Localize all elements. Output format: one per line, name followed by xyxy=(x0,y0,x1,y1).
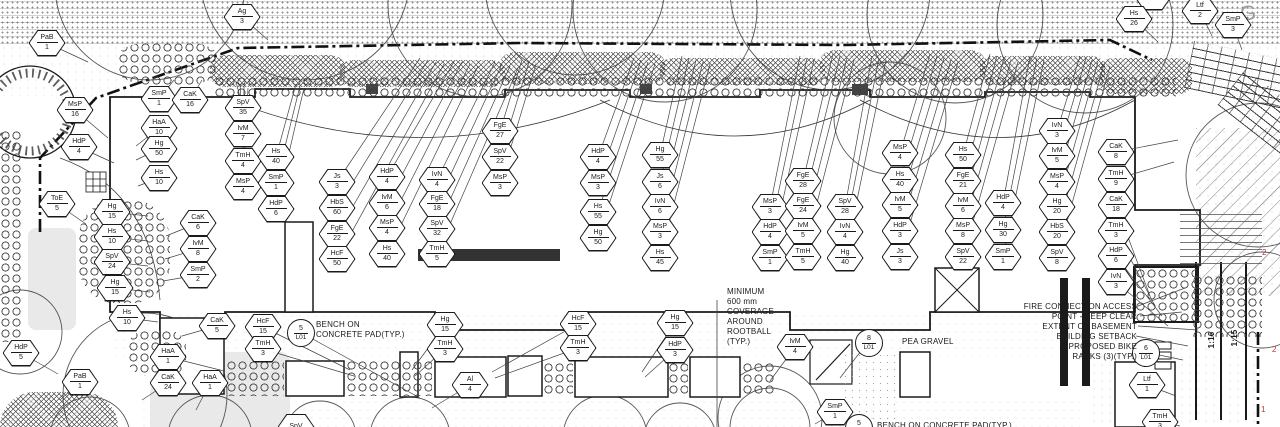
plant-qty: 4 xyxy=(898,153,902,162)
plant-label-face: CaK6 xyxy=(181,211,216,236)
plant-qty: 4 xyxy=(241,161,245,170)
plant-code: IvM xyxy=(188,240,209,249)
plant-label-face: Al4 xyxy=(453,373,488,398)
plant-code: MsP xyxy=(1047,173,1068,182)
plant-qty: 15 xyxy=(111,288,119,297)
plant-label-face: Ltf2 xyxy=(1183,0,1218,23)
ramp-slope-1: 1:16 xyxy=(1207,320,1217,360)
plant-label-face: HdP5 xyxy=(4,341,39,366)
plant-code: IvN xyxy=(650,198,671,207)
plant-code: MsP xyxy=(233,178,254,187)
plant-qty: 3 xyxy=(443,349,447,358)
plant-qty: 2 xyxy=(1151,0,1155,2)
plant-qty: 28 xyxy=(841,207,849,216)
plant-qty: 5 xyxy=(215,326,219,335)
plant-qty: 10 xyxy=(108,237,116,246)
plant-label-face: HbS20 xyxy=(1040,220,1075,245)
plant-label-face: FgE22 xyxy=(320,222,355,247)
plant-qty: 22 xyxy=(496,157,504,166)
plant-label-face: MsP3 xyxy=(581,171,616,196)
plant-qty: 5 xyxy=(898,205,902,214)
plant-label-face: HdP4 xyxy=(62,135,97,160)
plant-label-face: FgE24 xyxy=(786,194,821,219)
plant-code: SmP xyxy=(265,174,286,183)
plant-label-face: HaA1 xyxy=(193,371,228,396)
plant-qty: 9 xyxy=(1114,179,1118,188)
plant-code: Hg xyxy=(149,140,170,149)
plant-code: Hg xyxy=(105,279,126,288)
plant-qty: 7 xyxy=(241,134,245,143)
plant-qty: 1 xyxy=(78,382,82,391)
plant-qty: 6 xyxy=(658,182,662,191)
plant-code: SpV xyxy=(1047,249,1068,258)
plant-qty: 4 xyxy=(793,347,797,356)
plant-code: HdP xyxy=(1106,247,1127,256)
plant-label-face: HcF15 xyxy=(561,312,596,337)
plant-qty: 3 xyxy=(1114,282,1118,291)
plant-qty: 40 xyxy=(383,254,391,263)
plant-qty: 8 xyxy=(1055,258,1059,267)
plant-code: IvM xyxy=(785,338,806,347)
plant-qty: 21 xyxy=(959,181,967,190)
plant-code: MsP xyxy=(890,144,911,153)
plant-code: Js xyxy=(327,173,348,182)
plant-code: Hg xyxy=(835,249,856,258)
plant-qty: 4 xyxy=(1055,182,1059,191)
plant-label-face: HdP4 xyxy=(370,165,405,190)
plant-label-face: IvN3 xyxy=(1099,270,1134,295)
plant-code: FgE xyxy=(427,195,448,204)
plant-label-face: FgE27 xyxy=(483,119,518,144)
plant-label-face: Hg30 xyxy=(986,218,1021,243)
plant-label-face: TmH3 xyxy=(561,336,596,361)
plant-label-face: HdP6 xyxy=(259,197,294,222)
plant-code: TmH xyxy=(1105,170,1126,179)
plant-code: SmP xyxy=(187,266,208,275)
plant-label-face: Hs10 xyxy=(95,225,130,250)
plant-code: Ltf xyxy=(1190,2,1211,11)
plant-code: Hs xyxy=(953,146,974,155)
plant-label-face: Js3 xyxy=(320,170,355,195)
plant-label-face: Hs10 xyxy=(110,306,145,331)
plant-label-face: MsP8 xyxy=(946,219,981,244)
plant-label-face: IvN3 xyxy=(1040,119,1075,144)
plant-code: TmH xyxy=(252,340,273,349)
plant-label-face: PaB1 xyxy=(30,31,65,56)
plant-label-face: HdP4 xyxy=(581,145,616,170)
plant-code: Hs xyxy=(266,148,287,157)
plant-qty: 55 xyxy=(656,155,664,164)
plant-qty: 2 xyxy=(1198,11,1202,20)
plant-code: HcF xyxy=(253,318,274,327)
plant-label-face: IvM5 xyxy=(1040,144,1075,169)
plant-label-face: FgE18 xyxy=(420,192,455,217)
plant-code: Js xyxy=(650,173,671,182)
note-line: AROUND xyxy=(727,317,774,327)
plant-label-face: HcF50 xyxy=(320,247,355,272)
plant-label-face: IvN6 xyxy=(643,195,678,220)
plant-code: HcF xyxy=(568,315,589,324)
plant-code: CaK xyxy=(1106,143,1127,152)
plant-code: Hg xyxy=(1047,198,1068,207)
plant-qty: 6 xyxy=(196,223,200,232)
plant-label-face: SmP1 xyxy=(753,246,788,271)
note-line: RACKS (3)(TYP.) xyxy=(960,352,1137,362)
plant-label-face: Hs26 xyxy=(1117,7,1152,32)
plant-label-face: TmH3 xyxy=(1099,219,1134,244)
plant-label-face: SmP1 xyxy=(986,245,1021,270)
plant-label-face: Hg20 xyxy=(1040,195,1075,220)
note-line: ROOTBALL xyxy=(727,327,774,337)
callout-number: 6 xyxy=(1139,345,1153,354)
plant-qty: 5 xyxy=(55,204,59,213)
plant-code: TmH xyxy=(567,339,588,348)
plant-code: SpV xyxy=(102,253,123,262)
plant-code: FgE xyxy=(490,122,511,131)
plant-qty: 16 xyxy=(71,110,79,119)
plant-qty: 2 xyxy=(196,275,200,284)
plant-label-face: HbS60 xyxy=(320,196,355,221)
plant-qty: 3 xyxy=(498,183,502,192)
plant-qty: 22 xyxy=(959,257,967,266)
plant-label-face: Hg15 xyxy=(428,313,463,338)
plant-qty: 1 xyxy=(45,43,49,52)
plant-label-face: MsP3 xyxy=(643,220,678,245)
plant-code: Ltf xyxy=(1137,376,1158,385)
plant-code: SpV xyxy=(286,423,307,427)
plant-label-face: SpV8 xyxy=(1040,246,1075,271)
plant-code: SmP xyxy=(824,403,845,412)
plant-label-face: Ag3 xyxy=(225,5,260,30)
plant-code: TmH xyxy=(434,340,455,349)
plant-code: Hs xyxy=(588,203,609,212)
plant-code: HbS xyxy=(1047,223,1068,232)
plant-qty: 28 xyxy=(799,181,807,190)
plant-code: Hg xyxy=(102,203,123,212)
plant-label-face: SmP2 xyxy=(181,263,216,288)
note-line: (TYP.) xyxy=(727,337,774,347)
plant-code: Hs xyxy=(890,171,911,180)
plant-label-face: IvN4 xyxy=(828,220,863,245)
plant-label-face: Hg15 xyxy=(98,276,133,301)
plant-qty: 50 xyxy=(155,149,163,158)
callout-sheet: L01 xyxy=(864,344,875,352)
plant-label-face: FgE21 xyxy=(946,169,981,194)
plant-qty: 4 xyxy=(768,232,772,241)
callout-number: 5 xyxy=(852,420,866,427)
plant-label-face: SpV35 xyxy=(226,96,261,121)
plant-code: SmP xyxy=(759,249,780,258)
plant-code: Hs xyxy=(1124,10,1145,19)
plant-label-face: MsP3 xyxy=(483,171,518,196)
plant-label-face: Hg55 xyxy=(643,143,678,168)
plant-code: Al xyxy=(460,376,481,385)
plant-qty: 50 xyxy=(959,155,967,164)
plant-code: FgE xyxy=(793,172,814,181)
note-line: CONCRETE PAD(TYP.) xyxy=(316,330,405,340)
plant-code: HaA xyxy=(158,348,179,357)
plant-label-face: PaB1 xyxy=(63,370,98,395)
plant-code: Hs xyxy=(102,228,123,237)
plant-qty: 3 xyxy=(261,349,265,358)
plant-label-face: IvN4 xyxy=(420,168,455,193)
note-line: POINT - KEEP CLEAR xyxy=(960,312,1137,322)
plant-qty: 1 xyxy=(274,183,278,192)
plant-label-face: SpV22 xyxy=(946,245,981,270)
plant-code: CaK xyxy=(207,317,228,326)
plant-label-face: SpV28 xyxy=(828,195,863,220)
plant-code: SmP xyxy=(992,248,1013,257)
plant-label-face: FgE28 xyxy=(786,169,821,194)
plant-qty: 26 xyxy=(1130,19,1138,28)
plant-label-face: MsP16 xyxy=(58,98,93,123)
plant-label-face: Js3 xyxy=(883,245,918,270)
plant-code: FgE xyxy=(953,172,974,181)
plant-qty: 3 xyxy=(596,183,600,192)
detail-callout: 5L01 xyxy=(287,319,315,347)
plant-label-face: TmH3 xyxy=(246,337,281,362)
plant-qty: 3 xyxy=(576,348,580,357)
plant-code: CaK xyxy=(1106,196,1127,205)
bench-note: BENCH ONCONCRETE PAD(TYP.) xyxy=(316,320,405,340)
plant-qty: 45 xyxy=(656,258,664,267)
plant-label-face: Hg50 xyxy=(581,226,616,251)
plant-label-face: IvM5 xyxy=(786,219,821,244)
plant-label-face: HdP4 xyxy=(986,191,1021,216)
plant-label-face: IvM5 xyxy=(883,193,918,218)
plant-qty: 40 xyxy=(896,180,904,189)
plant-label-face: MsP4 xyxy=(1040,170,1075,195)
plant-qty: 10 xyxy=(123,318,131,327)
plant-code: IvN xyxy=(835,223,856,232)
plant-qty: 8 xyxy=(196,249,200,258)
plant-code: HdP xyxy=(890,222,911,231)
note-line: EXTENT OF BASEMENT xyxy=(960,322,1137,332)
plant-code: SpV xyxy=(953,248,974,257)
plant-qty: 40 xyxy=(272,157,280,166)
plant-qty: 1 xyxy=(768,258,772,267)
plant-code: TmH xyxy=(426,245,447,254)
plant-code: SpV xyxy=(233,99,254,108)
plant-code: HdP xyxy=(377,168,398,177)
plant-qty: 5 xyxy=(1055,156,1059,165)
plant-code: MsP xyxy=(65,101,86,110)
plant-code: Hs xyxy=(117,309,138,318)
plant-label-face: SpV22 xyxy=(483,145,518,170)
plant-qty: 4 xyxy=(596,157,600,166)
plant-label-face: IvM6 xyxy=(946,194,981,219)
plant-qty: 4 xyxy=(241,187,245,196)
plant-qty: 3 xyxy=(1158,422,1162,427)
plant-qty: 6 xyxy=(658,207,662,216)
plant-code: IvN xyxy=(427,171,448,180)
plant-code: SmP xyxy=(1222,16,1243,25)
plant-label-face: Hg40 xyxy=(828,246,863,271)
plant-label-face: TmH4 xyxy=(226,149,261,174)
plant-qty: 1 xyxy=(1145,385,1149,394)
note-line: 600 mm xyxy=(727,297,774,307)
plant-qty: 32 xyxy=(433,229,441,238)
plant-label-face: Hs40 xyxy=(883,168,918,193)
plant-qty: 6 xyxy=(1114,256,1118,265)
red-revision-mark: 1 xyxy=(1261,405,1265,414)
plant-label-face: CaK16 xyxy=(173,88,208,113)
plant-code: Hs xyxy=(650,249,671,258)
plant-code: IvN xyxy=(1047,122,1068,131)
plant-code: MsP xyxy=(953,222,974,231)
note-line: FIRE CONNECTION ACCESS xyxy=(960,302,1137,312)
plant-code: Hg xyxy=(993,221,1014,230)
plant-label-face: Hs55 xyxy=(581,200,616,225)
plant-code: MsP xyxy=(490,174,511,183)
plant-code: IvM xyxy=(233,125,254,134)
plant-label-face: HdP6 xyxy=(1099,244,1134,269)
plant-label-face: SmP3 xyxy=(1216,13,1251,38)
plant-code: MsP xyxy=(377,219,398,228)
plant-qty: 50 xyxy=(594,238,602,247)
plant-label-face: Hg15 xyxy=(95,200,130,225)
plant-code: Hs xyxy=(377,245,398,254)
plant-qty: 3 xyxy=(898,231,902,240)
plant-code: Js xyxy=(890,248,911,257)
plant-label-face: MsP3 xyxy=(753,195,788,220)
plant-qty: 20 xyxy=(1053,232,1061,241)
plant-code: HbS xyxy=(327,199,348,208)
plant-label-face: SmP1 xyxy=(142,87,177,112)
plant-code: SpV xyxy=(835,198,856,207)
plant-qty: 18 xyxy=(1112,205,1120,214)
plant-code: CaK xyxy=(158,374,179,383)
plant-code: IvM xyxy=(953,197,974,206)
plant-code: HdP xyxy=(665,341,686,350)
plant-qty: 4 xyxy=(843,232,847,241)
note-line: PROPOSED BIKE xyxy=(960,342,1137,352)
plant-code: HdP xyxy=(588,148,609,157)
plant-code: Hg xyxy=(435,316,456,325)
plant-code: MsP xyxy=(650,223,671,232)
plant-code: SpV xyxy=(427,220,448,229)
plant-label-face: HdP4 xyxy=(753,220,788,245)
plant-qty: 8 xyxy=(961,231,965,240)
plant-code: HcF xyxy=(327,250,348,259)
plant-code: TmH xyxy=(1149,413,1170,422)
plant-label-face: IvM7 xyxy=(226,122,261,147)
plant-label-face: ToE5 xyxy=(40,192,75,217)
plant-qty: 6 xyxy=(385,203,389,212)
plant-qty: 20 xyxy=(1053,207,1061,216)
plant-qty: 3 xyxy=(658,232,662,241)
plant-code: Ag xyxy=(232,8,253,17)
plant-code: IvN xyxy=(1106,273,1127,282)
plant-qty: 15 xyxy=(441,325,449,334)
plant-label-face: TmH9 xyxy=(1099,167,1134,192)
plant-code: IvM xyxy=(377,194,398,203)
plant-qty: 5 xyxy=(435,254,439,263)
plant-qty: 3 xyxy=(1055,131,1059,140)
plant-qty: 35 xyxy=(239,108,247,117)
detail-callout: 8L01 xyxy=(855,329,883,357)
plant-qty: 10 xyxy=(155,178,163,187)
plant-label-face: CaK18 xyxy=(1099,193,1134,218)
plant-label-face: IvM8 xyxy=(181,237,216,262)
plant-code: CaK xyxy=(180,91,201,100)
plant-label-face: Hs40 xyxy=(259,145,294,170)
plant-qty: 60 xyxy=(333,208,341,217)
plant-qty: 22 xyxy=(333,234,341,243)
plant-label-face: Hs10 xyxy=(142,166,177,191)
plant-qty: 50 xyxy=(333,259,341,268)
plant-label-face: SpV24 xyxy=(95,250,130,275)
plant-code: Hg xyxy=(665,314,686,323)
rootball-note: MINIMUM600 mmCOVERAGEAROUNDROOTBALL(TYP.… xyxy=(727,287,774,347)
plant-code: HdP xyxy=(993,194,1014,203)
plant-qty: 16 xyxy=(186,100,194,109)
plant-qty: 3 xyxy=(240,17,244,26)
plant-code: PaB xyxy=(37,34,58,43)
plant-qty: 1 xyxy=(833,412,837,421)
plant-code: Hg xyxy=(650,146,671,155)
red-revision-mark: 2 xyxy=(1262,248,1266,257)
note-line: COVERAGE xyxy=(727,307,774,317)
plant-label-face: SmP1 xyxy=(259,171,294,196)
plant-qty: 24 xyxy=(164,383,172,392)
plant-qty: 6 xyxy=(274,209,278,218)
plant-label-face: HdP3 xyxy=(658,338,693,363)
callout-number: 8 xyxy=(862,335,876,344)
plant-label-face: MsP4 xyxy=(883,141,918,166)
plant-qty: 1 xyxy=(208,383,212,392)
plant-label-face: Hs40 xyxy=(370,242,405,267)
plant-qty: 18 xyxy=(433,204,441,213)
plant-code: HdP xyxy=(11,344,32,353)
ramp-slope-2: 1:15 xyxy=(1230,318,1240,358)
callout-sheet: L01 xyxy=(296,334,307,342)
plant-label-face: Hg50 xyxy=(142,137,177,162)
plant-code: TmH xyxy=(232,152,253,161)
plant-label-face: CaK8 xyxy=(1099,140,1134,165)
plant-qty: 3 xyxy=(1114,231,1118,240)
plant-code: IvM xyxy=(793,222,814,231)
plant-label-face: MsP4 xyxy=(370,216,405,241)
plant-qty: 15 xyxy=(259,327,267,336)
plant-code: ToE xyxy=(47,195,68,204)
plant-qty: 3 xyxy=(898,257,902,266)
plant-code: HdP xyxy=(69,138,90,147)
plant-qty: 3 xyxy=(1231,25,1235,34)
plant-label-face: CaK24 xyxy=(151,371,186,396)
plant-code: MsP xyxy=(760,198,781,207)
plant-qty: 4 xyxy=(385,177,389,186)
plant-label-face: Hs50 xyxy=(946,143,981,168)
plant-qty: 5 xyxy=(801,257,805,266)
plant-label-face: Js6 xyxy=(643,170,678,195)
plant-label-face: HaA1 xyxy=(151,345,186,370)
plant-label-face: TmH5 xyxy=(786,245,821,270)
plant-code: FgE xyxy=(327,225,348,234)
plant-qty: 30 xyxy=(999,230,1007,239)
plant-label-face: HdP3 xyxy=(883,219,918,244)
plant-qty: 3 xyxy=(673,350,677,359)
plant-qty: 3 xyxy=(768,207,772,216)
plant-qty: 1 xyxy=(166,357,170,366)
plant-code: IvM xyxy=(1047,147,1068,156)
plant-code: HdP xyxy=(266,200,287,209)
note-line: BUILDING SETBACK xyxy=(960,332,1137,342)
plant-code: HaA xyxy=(149,119,170,128)
plant-qty: 15 xyxy=(671,323,679,332)
red-revision-mark: 2 xyxy=(1272,345,1276,354)
plant-qty: 15 xyxy=(574,324,582,333)
